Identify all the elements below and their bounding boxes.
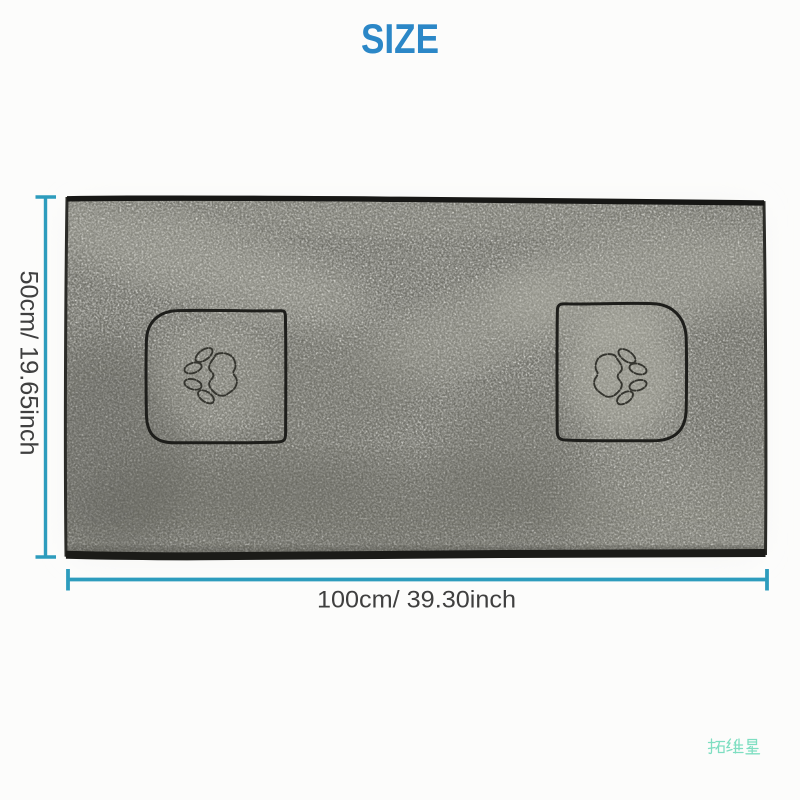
svg-text:SIZE: SIZE	[361, 15, 439, 62]
svg-text:50cm/ 19.65inch: 50cm/ 19.65inch	[15, 271, 43, 456]
svg-text:100cm/ 39.30inch: 100cm/ 39.30inch	[317, 588, 516, 614]
